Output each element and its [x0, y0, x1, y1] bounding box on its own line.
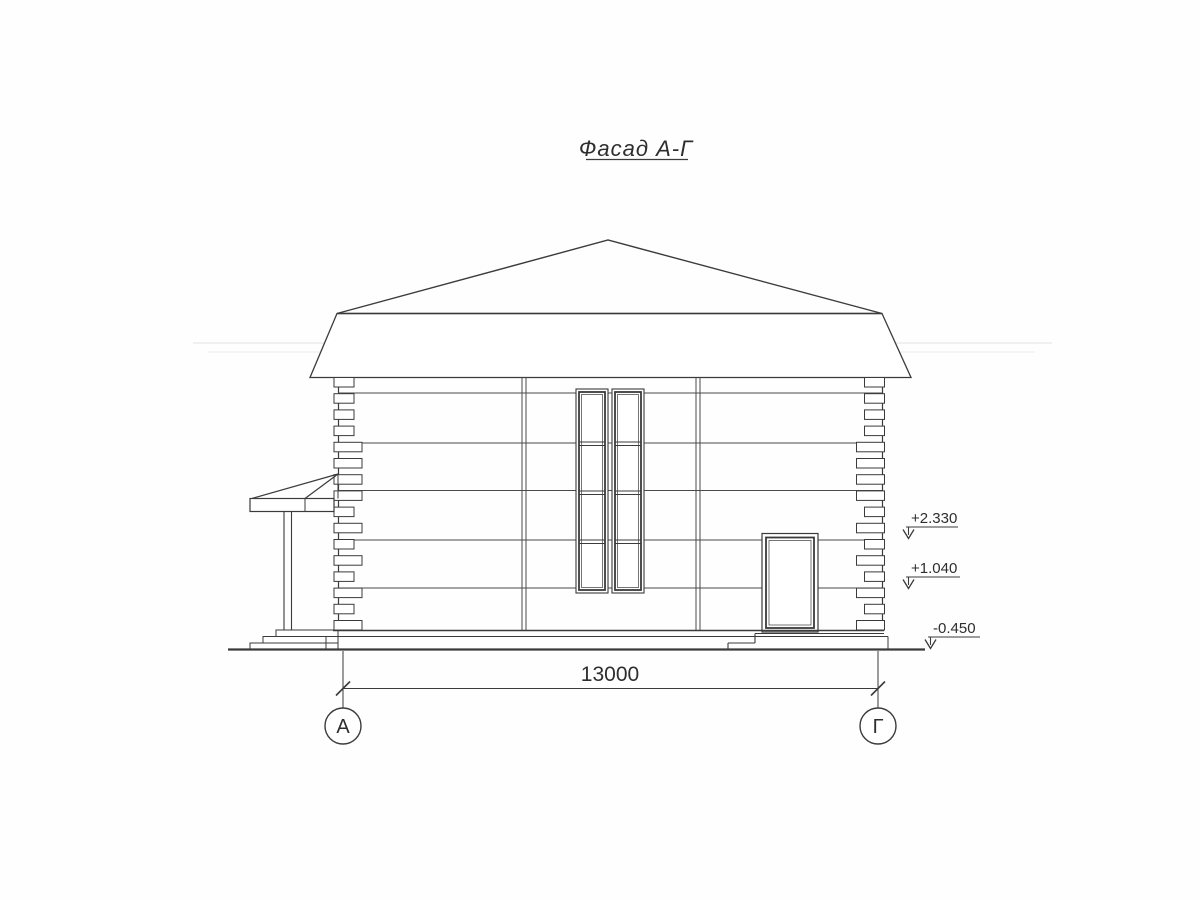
window-right: [612, 389, 644, 593]
elevation-mark-upper: +2.330: [903, 510, 958, 539]
entrance-stoop: [728, 634, 884, 650]
entrance-door: [762, 534, 818, 633]
log-ends-right-corner: [857, 378, 885, 631]
hip-roof: [310, 240, 911, 378]
elevation-mark-upper-label: +2.330: [911, 510, 957, 527]
porch-post: [284, 512, 292, 631]
drawing-title-text: Фасад А-Г: [579, 136, 694, 161]
facade-elevation-drawing: 13000 А Г +2.330 +1.040 -0.450 Фасад А-Г: [0, 0, 1200, 900]
drawing-title: Фасад А-Г: [579, 136, 694, 161]
porch-steps: [250, 630, 338, 649]
drawing-sheet: 13000 А Г +2.330 +1.040 -0.450 Фасад А-Г: [0, 0, 1200, 900]
roof-hip-slopes: [337, 240, 882, 314]
elevation-mark-middle: +1.040: [903, 560, 960, 589]
roof-fascia-band: [310, 314, 911, 378]
window-left: [576, 389, 608, 593]
axis-label-a: А: [336, 716, 350, 738]
downpipe-left: [522, 378, 526, 631]
porch-canopy: [250, 474, 338, 512]
dimension-13000: 13000 А Г: [325, 651, 896, 744]
elevation-mark-ground-label: -0.450: [933, 620, 976, 637]
elevation-mark-middle-label: +1.040: [911, 560, 957, 577]
downpipe-right: [696, 378, 700, 631]
dimension-value: 13000: [581, 663, 639, 686]
elevation-mark-ground: -0.450: [925, 620, 980, 649]
axis-label-g: Г: [873, 716, 884, 738]
